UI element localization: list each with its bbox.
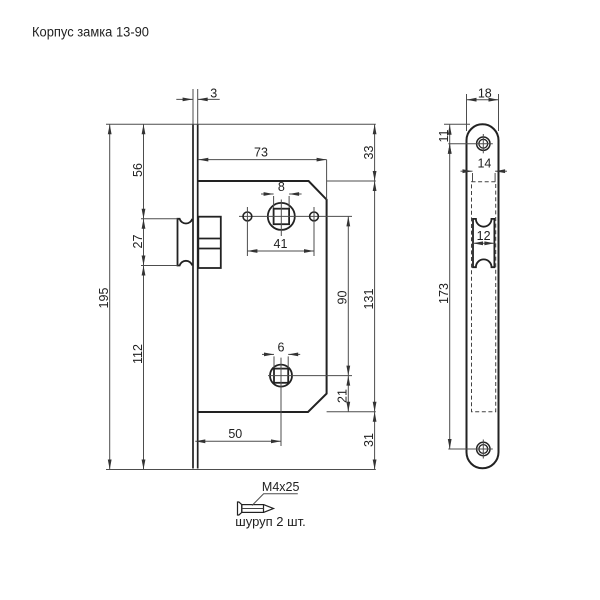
svg-text:8: 8	[278, 180, 285, 194]
svg-text:73: 73	[254, 146, 268, 160]
svg-text:90: 90	[336, 291, 350, 305]
svg-text:41: 41	[274, 237, 288, 251]
svg-text:112: 112	[131, 344, 145, 364]
svg-text:12: 12	[477, 229, 491, 243]
svg-text:шуруп 2 шт.: шуруп 2 шт.	[235, 514, 305, 529]
svg-text:14: 14	[477, 157, 491, 171]
svg-text:M4x25: M4x25	[262, 480, 300, 494]
svg-text:18: 18	[478, 87, 492, 101]
svg-text:56: 56	[131, 163, 145, 177]
svg-text:50: 50	[228, 427, 242, 441]
svg-text:131: 131	[362, 289, 376, 310]
svg-text:21: 21	[336, 389, 350, 403]
svg-text:Корпус замка 13-90: Корпус замка 13-90	[32, 25, 149, 40]
svg-text:27: 27	[131, 235, 145, 249]
svg-text:195: 195	[97, 288, 111, 309]
svg-text:3: 3	[210, 87, 217, 101]
svg-text:6: 6	[278, 341, 285, 355]
svg-text:173: 173	[437, 283, 451, 304]
svg-text:31: 31	[362, 433, 376, 447]
svg-text:11: 11	[437, 129, 451, 142]
svg-text:33: 33	[362, 146, 376, 160]
